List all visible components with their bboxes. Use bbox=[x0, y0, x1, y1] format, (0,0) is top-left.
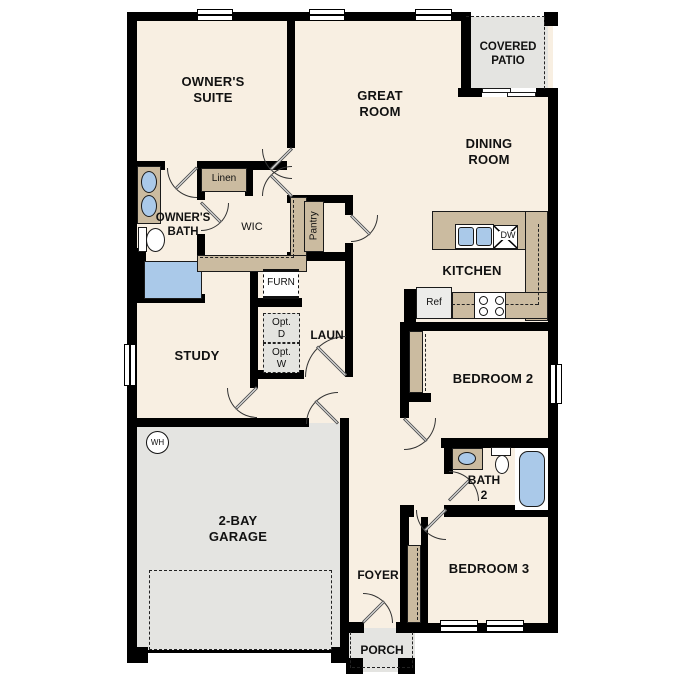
sink-icon bbox=[458, 452, 476, 465]
burner-icon bbox=[479, 296, 488, 305]
window bbox=[197, 9, 233, 21]
dishwasher-label: DW bbox=[499, 231, 517, 240]
wall bbox=[548, 88, 558, 633]
tub-icon bbox=[144, 261, 202, 299]
room-label-dining-room: DINING ROOM bbox=[439, 136, 539, 167]
patio-edge-dashed bbox=[466, 16, 545, 17]
burner-icon bbox=[479, 307, 488, 316]
wall bbox=[127, 12, 137, 663]
room-label-laundry: LAUN bbox=[300, 328, 354, 343]
porch-edge-dashed bbox=[352, 667, 410, 668]
room-label-study: STUDY bbox=[147, 348, 247, 364]
garage-door-outline bbox=[149, 570, 332, 650]
window bbox=[440, 620, 478, 632]
wall bbox=[127, 647, 148, 663]
closet-rod-line bbox=[425, 334, 426, 391]
wall bbox=[127, 418, 309, 427]
sliding-door-panel bbox=[507, 92, 536, 97]
room-label-covered-patio: COVERED PATIO bbox=[468, 40, 548, 69]
room-label-wic: WIC bbox=[230, 221, 274, 234]
wall bbox=[400, 322, 558, 331]
room-label-foyer: FOYER bbox=[346, 568, 410, 583]
wall bbox=[403, 393, 431, 402]
room-label-great-room: GREAT ROOM bbox=[330, 88, 430, 119]
room-label-owners-suite: OWNER'S SUITE bbox=[153, 74, 273, 105]
optional-washer-label: Opt. W bbox=[263, 347, 300, 370]
closet-rod-line bbox=[293, 200, 294, 257]
window bbox=[486, 620, 524, 632]
optional-dryer-label: Opt. D bbox=[263, 317, 300, 340]
sink-basin-icon bbox=[476, 227, 492, 246]
garage-door-line bbox=[148, 650, 331, 653]
sink-icon bbox=[141, 171, 157, 193]
room-label-bedroom3: BEDROOM 3 bbox=[429, 561, 549, 577]
closet-shelf bbox=[407, 545, 421, 623]
burner-icon bbox=[495, 296, 504, 305]
wall bbox=[458, 88, 484, 97]
wall bbox=[400, 322, 409, 418]
wall bbox=[287, 21, 295, 148]
closet-shelf bbox=[409, 331, 423, 393]
window bbox=[124, 344, 136, 386]
wall bbox=[346, 658, 363, 674]
water-heater-label: WH bbox=[146, 439, 169, 447]
window bbox=[309, 9, 345, 21]
room-label-kitchen: KITCHEN bbox=[422, 263, 522, 279]
wall bbox=[256, 298, 302, 307]
wall bbox=[345, 243, 353, 377]
wall bbox=[404, 623, 558, 633]
closet-rod-line bbox=[200, 257, 294, 258]
window bbox=[415, 9, 452, 21]
closet-rod-line bbox=[417, 548, 418, 620]
room-label-porch: PORCH bbox=[351, 643, 413, 658]
tub-icon bbox=[519, 451, 545, 507]
toilet-icon bbox=[495, 455, 509, 474]
burner-icon bbox=[495, 307, 504, 316]
wall bbox=[544, 12, 558, 26]
cabinet-dashed-line bbox=[538, 224, 539, 305]
floor-plan: WH Linen Pantry FURN Opt. D Opt. W DW Re… bbox=[0, 0, 687, 687]
pantry-label: Pantry bbox=[308, 201, 320, 251]
room-label-bath2: BATH 2 bbox=[452, 473, 516, 503]
furnace-label: FURN bbox=[263, 277, 299, 289]
wall bbox=[396, 622, 406, 633]
room-label-bedroom2: BEDROOM 2 bbox=[432, 371, 554, 387]
room-label-owners-bath: OWNER'S BATH bbox=[141, 211, 225, 240]
refrigerator-label: Ref bbox=[416, 297, 452, 309]
room-label-garage: 2-BAY GARAGE bbox=[177, 513, 299, 544]
linen-label: Linen bbox=[201, 173, 247, 185]
sink-basin-icon bbox=[458, 227, 474, 246]
